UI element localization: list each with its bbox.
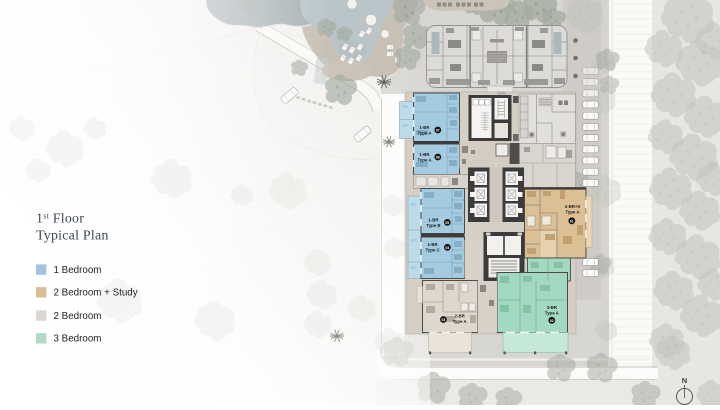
svg-text:Type A: Type A bbox=[418, 130, 433, 135]
svg-text:2-BR+S: 2-BR+S bbox=[565, 204, 581, 209]
svg-text:N: N bbox=[682, 376, 687, 385]
svg-text:Typical Plan: Typical Plan bbox=[36, 229, 109, 244]
svg-text:2-BR: 2-BR bbox=[455, 314, 466, 319]
svg-text:3-BR: 3-BR bbox=[547, 305, 558, 310]
svg-text:1-BR: 1-BR bbox=[419, 152, 430, 157]
svg-text:1-BR: 1-BR bbox=[428, 242, 439, 247]
svg-text:01: 01 bbox=[570, 220, 574, 224]
svg-text:1-BR: 1-BR bbox=[428, 218, 439, 223]
svg-text:2 Bedroom: 2 Bedroom bbox=[54, 311, 102, 322]
svg-text:04: 04 bbox=[446, 246, 450, 250]
svg-text:1-BR: 1-BR bbox=[419, 125, 430, 130]
svg-text:07: 07 bbox=[436, 129, 440, 133]
svg-text:Type A: Type A bbox=[545, 310, 560, 315]
svg-text:Type C: Type C bbox=[426, 247, 441, 252]
svg-text:Type A: Type A bbox=[418, 157, 433, 162]
svg-text:02: 02 bbox=[550, 319, 554, 323]
svg-text:Type A: Type A bbox=[453, 319, 468, 324]
svg-text:05: 05 bbox=[445, 221, 449, 225]
svg-text:3 Bedroom: 3 Bedroom bbox=[54, 334, 102, 345]
svg-text:Type A: Type A bbox=[566, 209, 581, 214]
svg-text:Type B: Type B bbox=[426, 223, 440, 228]
svg-text:03: 03 bbox=[442, 318, 446, 322]
svg-text:1 Bedroom: 1 Bedroom bbox=[54, 265, 102, 276]
svg-text:2 Bedroom + Study: 2 Bedroom + Study bbox=[54, 288, 138, 299]
svg-text:06: 06 bbox=[436, 156, 440, 160]
